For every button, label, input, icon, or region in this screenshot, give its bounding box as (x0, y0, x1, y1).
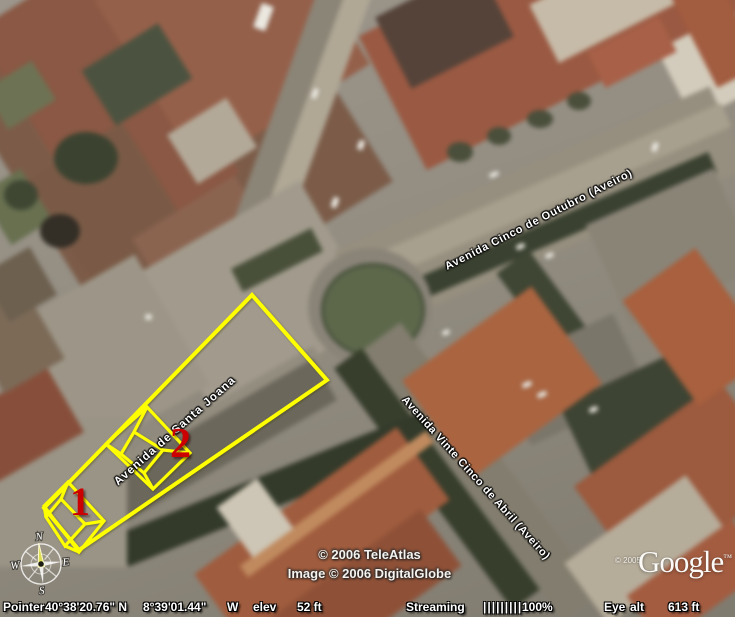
satellite-imagery (0, 0, 735, 617)
tree (487, 127, 511, 145)
compass-rose-icon: N E S W (8, 530, 74, 598)
tree (527, 110, 553, 128)
compass-w: W (10, 559, 21, 572)
pointer-longitude: 8°39'01.44" (143, 600, 206, 614)
elev-value: 52 ft (297, 600, 322, 614)
tree (447, 142, 473, 162)
alt-label: alt (630, 600, 644, 614)
elev-label: elev (253, 600, 276, 614)
pointer-latitude: 40°38'20.76" N (45, 600, 127, 614)
compass-e: E (61, 556, 70, 569)
google-earth-viewport[interactable]: Avenida Cinco de Outubro (Aveiro) Avenid… (0, 0, 735, 617)
vehicle-dot (488, 170, 499, 179)
streaming-progress-bars: ||||||||| (483, 600, 522, 614)
placemark-label-1[interactable]: 1 (70, 482, 90, 522)
compass-s: S (38, 585, 45, 598)
tree (40, 214, 80, 248)
streaming-percent: 100% (522, 600, 553, 614)
tree (54, 132, 118, 184)
vehicle-dot (145, 314, 152, 320)
tree (4, 180, 38, 210)
compass-n: N (34, 531, 44, 544)
streaming-label: Streaming (406, 600, 465, 614)
placemark-label-2[interactable]: 2 (170, 423, 191, 465)
google-logo-text: Google (638, 544, 723, 579)
pointer-longitude-dir: W (227, 600, 238, 614)
tree (567, 92, 591, 110)
google-logo: Google™ (638, 544, 732, 580)
vehicle-dot (441, 329, 450, 337)
pointer-label: Pointer (3, 600, 44, 614)
trademark-symbol: ™ (723, 553, 732, 563)
image-copyright: Image © 2006 DigitalGlobe (262, 566, 477, 581)
eye-alt-value: 613 ft (668, 600, 699, 614)
map-data-copyright: © 2006 TeleAtlas (277, 547, 462, 562)
eye-label: Eye (604, 600, 625, 614)
